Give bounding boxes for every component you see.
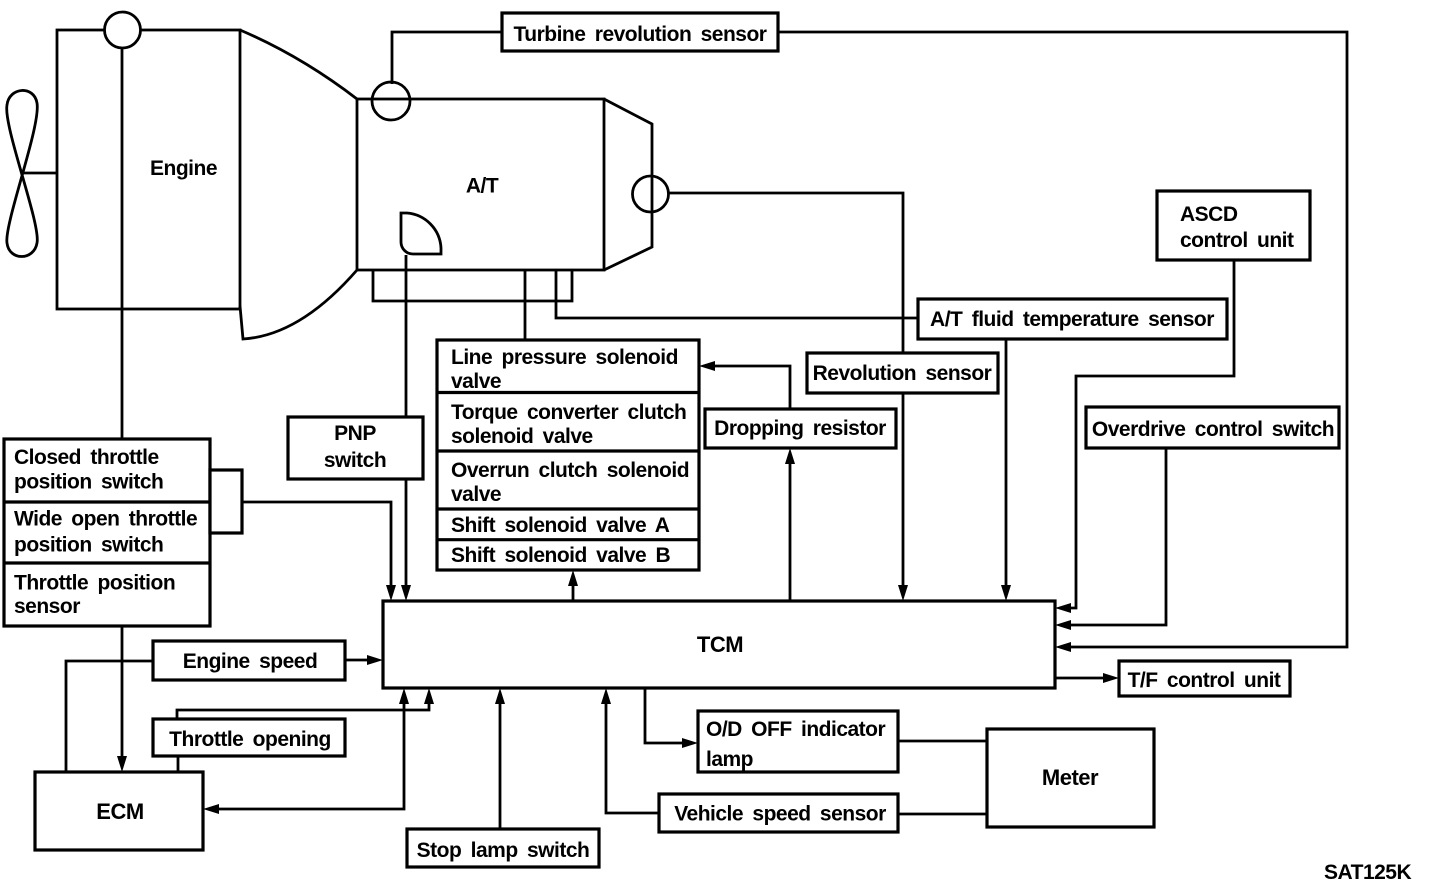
svg-text:Dropping resistor: Dropping resistor: [714, 417, 886, 440]
svg-text:Shift solenoid valve B: Shift solenoid valve B: [451, 544, 671, 567]
svg-text:Overdrive control switch: Overdrive control switch: [1092, 418, 1334, 441]
svg-text:ASCD: ASCD: [1180, 203, 1238, 226]
svg-text:solenoid valve: solenoid valve: [451, 425, 593, 448]
svg-text:O/D OFF indicator: O/D OFF indicator: [706, 718, 885, 741]
svg-text:A/T: A/T: [466, 175, 499, 198]
svg-text:position switch: position switch: [14, 534, 163, 557]
svg-text:Throttle opening: Throttle opening: [169, 728, 331, 751]
svg-text:Overrun clutch solenoid: Overrun clutch solenoid: [451, 459, 689, 482]
svg-text:Engine speed: Engine speed: [183, 650, 318, 673]
svg-text:ECM: ECM: [96, 799, 143, 824]
svg-text:TCM: TCM: [697, 632, 743, 657]
svg-text:Line pressure solenoid: Line pressure solenoid: [451, 346, 678, 369]
svg-text:Revolution sensor: Revolution sensor: [813, 362, 992, 385]
svg-text:PNP: PNP: [334, 422, 376, 445]
svg-text:SAT125K: SAT125K: [1324, 861, 1411, 884]
svg-text:Turbine revolution sensor: Turbine revolution sensor: [514, 23, 767, 46]
svg-text:Engine: Engine: [150, 157, 217, 180]
svg-text:Meter: Meter: [1042, 765, 1099, 790]
svg-text:Throttle position: Throttle position: [14, 572, 175, 595]
svg-text:valve: valve: [451, 370, 501, 393]
svg-text:A/T fluid temperature sensor: A/T fluid temperature sensor: [930, 308, 1214, 331]
svg-text:control unit: control unit: [1180, 229, 1294, 252]
svg-text:Closed throttle: Closed throttle: [14, 446, 159, 469]
svg-text:switch: switch: [324, 449, 386, 472]
svg-text:sensor: sensor: [14, 595, 80, 618]
svg-text:T/F control unit: T/F control unit: [1128, 669, 1281, 692]
svg-text:Vehicle speed sensor: Vehicle speed sensor: [674, 803, 886, 826]
svg-text:lamp: lamp: [706, 748, 753, 771]
svg-text:position switch: position switch: [14, 471, 163, 494]
svg-text:Wide open throttle: Wide open throttle: [14, 508, 197, 531]
svg-text:Stop lamp switch: Stop lamp switch: [417, 839, 590, 862]
svg-text:Torque converter clutch: Torque converter clutch: [451, 401, 686, 424]
svg-text:Shift solenoid valve A: Shift solenoid valve A: [451, 514, 670, 537]
svg-text:valve: valve: [451, 483, 501, 506]
